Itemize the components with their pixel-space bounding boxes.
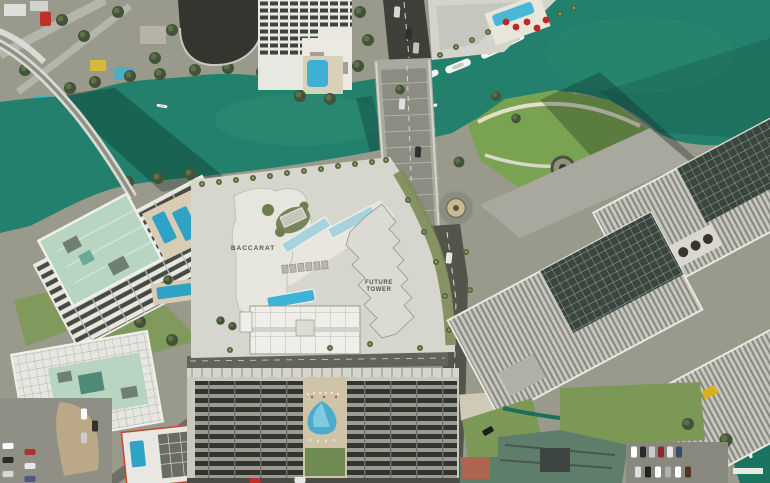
- swimming-pool: [129, 440, 146, 467]
- aerial-photo: [0, 0, 770, 483]
- red-vehicle: [40, 12, 51, 26]
- right-parking-lot: [626, 442, 728, 483]
- aerial-site-map: BACCARAT FUTURE TOWER: [0, 0, 770, 483]
- traffic-circle: [439, 191, 473, 225]
- unit-floorplate: [240, 306, 360, 354]
- parking-lot: [0, 398, 112, 483]
- swimming-pool: [307, 60, 328, 87]
